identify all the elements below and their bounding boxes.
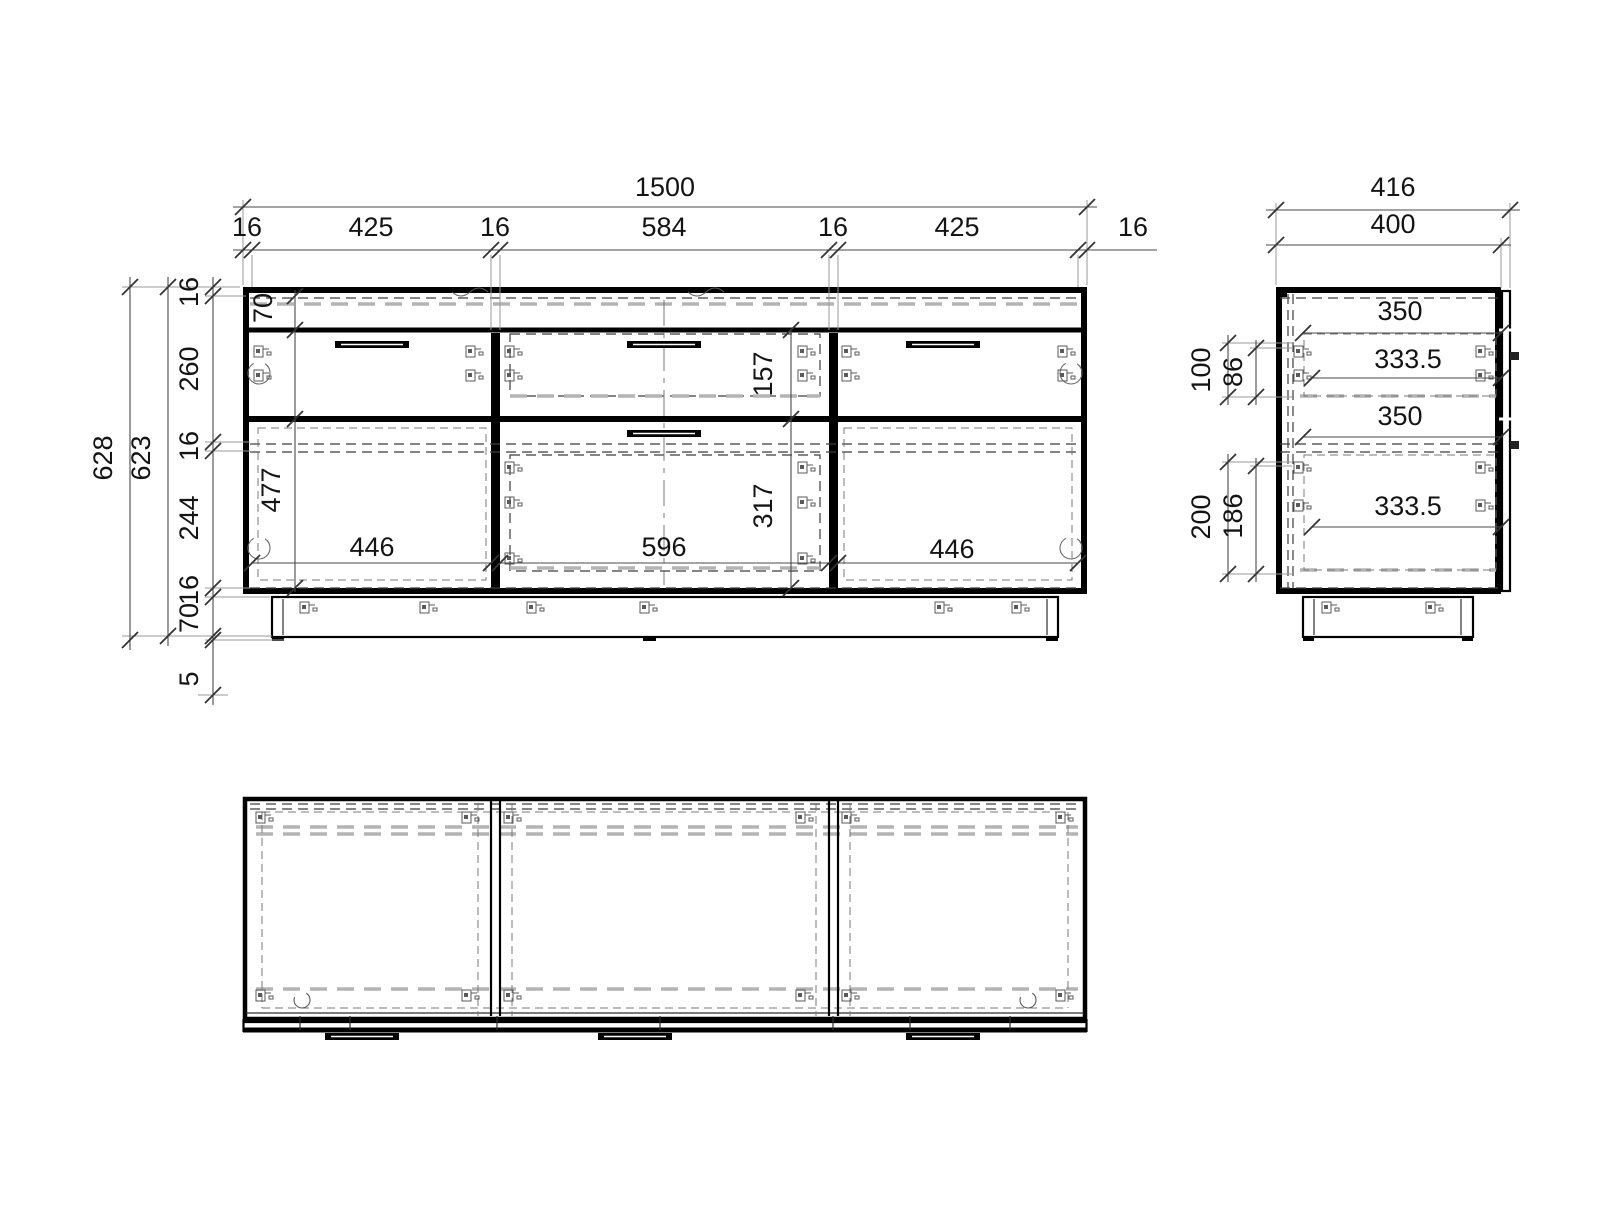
side-dimension-ticks <box>1220 202 1518 582</box>
dim-front-hseg-4: 16 <box>174 575 204 605</box>
side-front-panel-edge <box>1502 291 1510 591</box>
front-extension-lines <box>122 200 1087 695</box>
cad-drawing-sheet: 1500 16 425 16 584 16 425 16 628 623 16 … <box>0 0 1616 1212</box>
plan-view <box>243 799 1087 1040</box>
dim-front-height-inner: 623 <box>126 435 156 480</box>
front-handles <box>335 341 980 437</box>
side-extension-lines <box>1222 203 1510 574</box>
dim-front-hseg-5: 70 <box>174 603 204 633</box>
front-foot-middle <box>643 637 656 641</box>
dim-side-depth-1: 333.5 <box>1374 344 1442 374</box>
dim-front-seg-6: 16 <box>1118 212 1148 242</box>
dim-front-hseg-0: 16 <box>174 277 204 307</box>
dim-mid-drawer-height: 317 <box>748 483 778 528</box>
dim-front-hseg-1: 260 <box>174 346 204 391</box>
dim-left-door-width: 446 <box>349 532 394 562</box>
left-drawer-handle <box>335 341 409 348</box>
dim-front-seg-1: 425 <box>348 212 393 242</box>
dim-side-upper-outer: 100 <box>1186 347 1216 392</box>
dim-front-hseg-6: 5 <box>174 671 204 686</box>
dim-front-seg-5: 425 <box>934 212 979 242</box>
plan-middle-handle <box>598 1033 672 1040</box>
dim-front-seg-0: 16 <box>232 212 262 242</box>
dim-side-depth-total: 416 <box>1370 172 1415 202</box>
dim-front-hseg-3: 244 <box>174 495 204 540</box>
dim-left-door-height: 477 <box>256 467 286 512</box>
dim-front-seg-3: 584 <box>641 212 686 242</box>
dim-side-depth-0: 350 <box>1377 296 1422 326</box>
side-foot-front <box>1303 637 1314 641</box>
plan-hidden-lines <box>250 803 1080 1016</box>
dim-mid-top-drawer-height: 157 <box>748 351 778 396</box>
right-drawer-handle <box>906 341 980 348</box>
dim-front-total-width: 1500 <box>635 172 695 202</box>
side-plinth <box>1303 597 1473 641</box>
side-view <box>1279 290 1519 641</box>
dim-front-hseg-2: 16 <box>174 431 204 461</box>
dim-side-lower-inner: 186 <box>1218 493 1248 538</box>
front-view <box>246 288 1084 641</box>
front-foot-right <box>1046 637 1058 641</box>
dim-side-lower-outer: 200 <box>1186 494 1216 539</box>
front-plinth <box>272 597 1058 641</box>
plan-right-handle <box>906 1033 980 1040</box>
dim-mid-drawer-width: 596 <box>641 532 686 562</box>
side-foot-back <box>1462 637 1473 641</box>
furniture-technical-drawing: 1500 16 425 16 584 16 425 16 628 623 16 … <box>0 0 1616 1212</box>
side-knob-lower <box>1510 441 1519 449</box>
dim-side-upper-inner: 86 <box>1218 357 1248 387</box>
side-view-dimensions: 416 400 350 333.5 350 333.5 100 86 200 1… <box>1186 172 1520 582</box>
side-knob-upper <box>1510 352 1519 360</box>
mid-drawer-handle <box>627 430 701 437</box>
front-dimension-ticks <box>122 199 1095 703</box>
dim-front-seg-2: 16 <box>480 212 510 242</box>
dim-top-rail: 70 <box>248 293 278 323</box>
plan-carcass-outline <box>245 799 1085 1019</box>
front-dimension-lines <box>130 207 1157 705</box>
dim-side-depth-2: 350 <box>1377 401 1422 431</box>
front-hinge-icons <box>248 362 1082 559</box>
plan-hardware-icons <box>256 812 1073 1008</box>
mid-top-drawer-handle <box>627 341 701 348</box>
dim-side-depth-body: 400 <box>1370 209 1415 239</box>
dim-right-door-width: 446 <box>929 534 974 564</box>
side-hidden-lines <box>1280 294 1498 589</box>
dim-front-seg-4: 16 <box>818 212 848 242</box>
side-carcass-outline <box>1279 290 1498 591</box>
side-dowel-mark <box>1281 291 1287 297</box>
dim-front-height-outer: 628 <box>88 435 118 480</box>
plan-left-handle <box>325 1033 399 1040</box>
dim-side-depth-3: 333.5 <box>1374 491 1442 521</box>
plan-handles <box>325 1033 980 1040</box>
